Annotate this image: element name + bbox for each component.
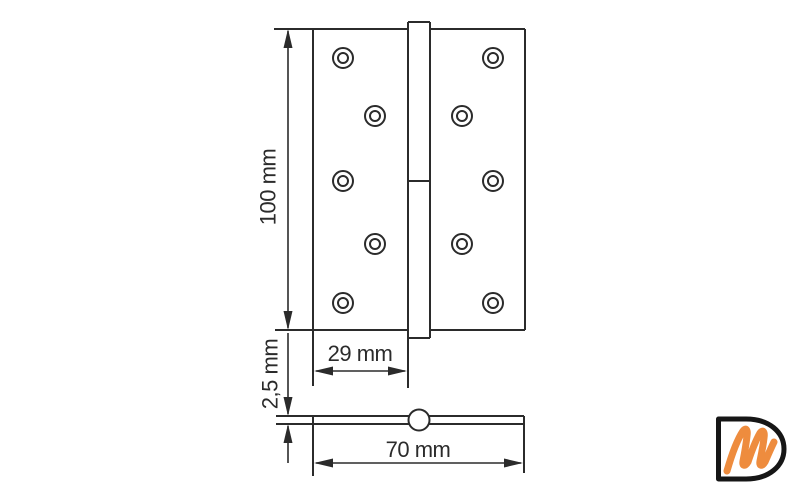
arrowhead-down-icon bbox=[284, 311, 293, 330]
logo-letter-m-icon bbox=[727, 429, 774, 471]
dim-thickness-label: 2,5 mm bbox=[258, 339, 283, 409]
screw-hole bbox=[365, 106, 385, 126]
dimension-height: 100 mm bbox=[256, 29, 293, 330]
brand-logo bbox=[719, 419, 785, 479]
hinge-plate-outline bbox=[274, 29, 525, 386]
dim-height-label: 100 mm bbox=[256, 149, 281, 225]
dimension-thickness: 2,5 mm bbox=[258, 333, 293, 463]
hinge-barrel bbox=[408, 22, 430, 388]
arrowhead-up-icon bbox=[284, 424, 293, 443]
dim-leaf-width-label: 29 mm bbox=[328, 341, 393, 366]
barrel-knuckle-circle bbox=[409, 410, 430, 431]
screw-hole bbox=[483, 48, 503, 68]
front-view bbox=[274, 22, 525, 388]
screw-hole bbox=[333, 293, 353, 313]
arrowhead-right-icon bbox=[388, 367, 407, 376]
product-drawing-canvas: 100 mm 29 mm 2,5 mm bbox=[0, 0, 800, 500]
dimension-leaf-width: 29 mm bbox=[314, 341, 407, 376]
screw-hole bbox=[333, 171, 353, 191]
dimension-total-width: 70 mm bbox=[314, 437, 523, 468]
dim-total-width-label: 70 mm bbox=[386, 437, 451, 462]
arrowhead-up-icon bbox=[284, 29, 293, 48]
screw-hole bbox=[452, 234, 472, 254]
screw-hole bbox=[483, 171, 503, 191]
arrowhead-down-icon bbox=[284, 397, 293, 416]
arrowhead-right-icon bbox=[504, 459, 523, 468]
screw-hole bbox=[365, 234, 385, 254]
arrowhead-left-icon bbox=[314, 459, 333, 468]
technical-drawing: 100 mm 29 mm 2,5 mm bbox=[0, 0, 800, 500]
screw-hole bbox=[333, 48, 353, 68]
screw-hole bbox=[452, 106, 472, 126]
arrowhead-left-icon bbox=[314, 367, 333, 376]
screw-hole bbox=[483, 293, 503, 313]
